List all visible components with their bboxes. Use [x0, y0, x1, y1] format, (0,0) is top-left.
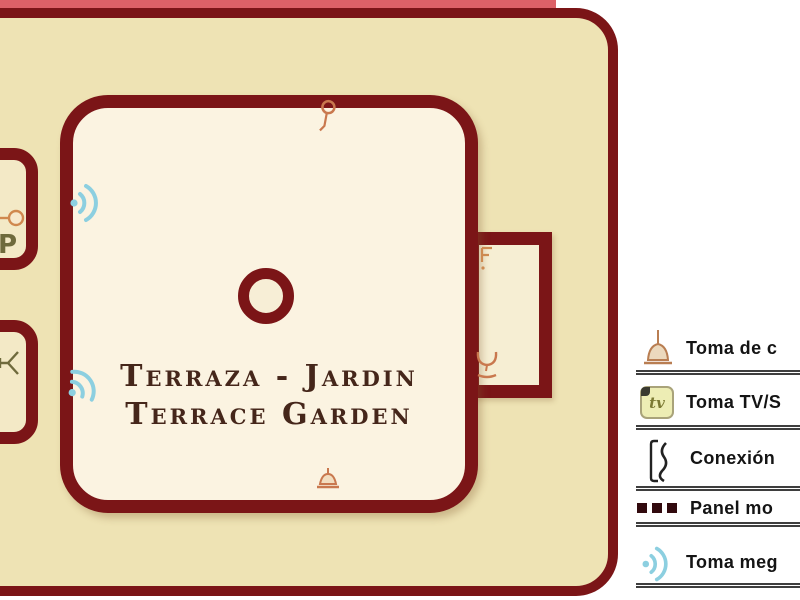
legend-divider [636, 522, 800, 527]
phone-connection-icon [648, 438, 678, 489]
movable-panel-icon [637, 503, 677, 513]
plan-title-spanish: Terraza - Jardin [60, 358, 478, 396]
center-feature-circle [238, 268, 294, 324]
plan-title-english: Terrace Garden [60, 396, 478, 434]
room-symbol-icon [0, 346, 22, 385]
tv-icon-label: tv [649, 394, 665, 412]
legend-divider [636, 583, 800, 588]
tv-outlet-icon: tv [640, 386, 674, 419]
power-outlet-icon [312, 97, 341, 144]
legend-divider [636, 425, 800, 430]
power-outlet-icon [314, 466, 342, 495]
legend-label-panel: Panel mo [690, 498, 773, 519]
legend-divider [636, 486, 800, 491]
legend-label-speaker: Toma meg [686, 552, 778, 573]
legend-divider [636, 370, 800, 375]
legend-label-power: Toma de c [686, 338, 777, 359]
legend-label-connection: Conexión [690, 448, 775, 469]
top-edge-highlight [0, 0, 556, 8]
plan-title: Terraza - Jardin Terrace Garden [60, 358, 478, 434]
speaker-outlet-icon [68, 180, 98, 231]
legend-label-tv: Toma TV/S [686, 392, 781, 413]
room-letter-label: P [0, 230, 17, 260]
power-outlet-icon [640, 330, 676, 375]
annex-symbol-icon [478, 246, 496, 279]
annex-symbol-icon [472, 348, 502, 385]
